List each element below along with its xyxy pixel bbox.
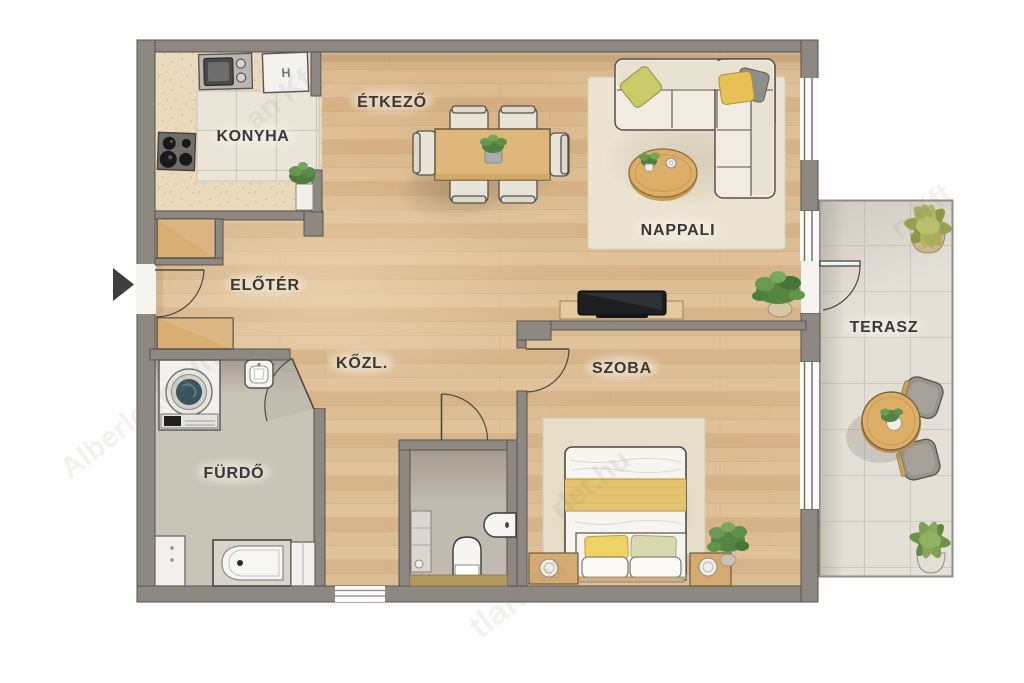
svg-text:TERASZ: TERASZ — [850, 319, 919, 336]
svg-text:KŐZL.: KŐZL. — [336, 353, 388, 372]
svg-text:KONYHA: KONYHA — [217, 128, 290, 145]
svg-text:ELŐTÉR: ELŐTÉR — [230, 275, 300, 294]
svg-text:FÜRDŐ: FÜRDŐ — [204, 463, 265, 482]
svg-text:SZOBA: SZOBA — [592, 360, 652, 377]
svg-text:NAPPALI: NAPPALI — [641, 222, 716, 239]
svg-text:ÉTKEZŐ: ÉTKEZŐ — [357, 92, 427, 111]
